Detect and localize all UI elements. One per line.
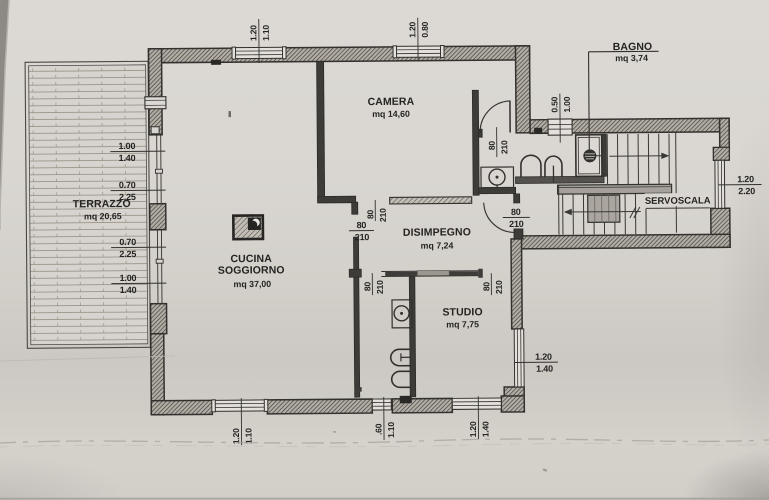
svg-text:2.25: 2.25 xyxy=(119,192,136,202)
svg-text:mq 7,24: mq 7,24 xyxy=(421,240,454,250)
svg-text:1.10: 1.10 xyxy=(261,25,271,41)
svg-text:210: 210 xyxy=(494,280,504,294)
svg-text:210: 210 xyxy=(509,219,524,229)
svg-text:1.40: 1.40 xyxy=(120,285,137,295)
svg-text:1.10: 1.10 xyxy=(243,428,253,444)
svg-text:1.00: 1.00 xyxy=(562,96,572,112)
svg-text:80: 80 xyxy=(357,220,367,230)
svg-text:1.20: 1.20 xyxy=(535,352,552,362)
svg-text:210: 210 xyxy=(375,280,385,294)
svg-text:mq 20,65: mq 20,65 xyxy=(84,211,122,221)
svg-text:80: 80 xyxy=(487,141,497,151)
svg-text:1.20: 1.20 xyxy=(248,25,258,41)
svg-text:1.20: 1.20 xyxy=(737,174,754,184)
svg-text:0.50: 0.50 xyxy=(549,96,559,112)
svg-text:.60: .60 xyxy=(373,423,383,435)
svg-text:1.20: 1.20 xyxy=(407,21,417,37)
svg-text:1.20: 1.20 xyxy=(231,428,241,444)
svg-text:0.70: 0.70 xyxy=(119,237,136,247)
svg-text:1.40: 1.40 xyxy=(536,364,553,374)
svg-text:2.20: 2.20 xyxy=(738,186,755,196)
svg-text:1.40: 1.40 xyxy=(480,421,490,437)
svg-text:1.40: 1.40 xyxy=(119,153,136,163)
svg-text:1.00: 1.00 xyxy=(118,141,135,151)
svg-text:SERVOSCALA: SERVOSCALA xyxy=(645,195,711,207)
svg-text:80: 80 xyxy=(362,282,372,292)
svg-text:1.10: 1.10 xyxy=(386,422,396,438)
svg-text:210: 210 xyxy=(499,140,509,154)
svg-text:1.00: 1.00 xyxy=(120,273,137,283)
svg-text:0.70: 0.70 xyxy=(119,180,136,190)
svg-text:80: 80 xyxy=(365,210,375,220)
svg-text:mq 7,75: mq 7,75 xyxy=(446,319,479,329)
svg-text:CUCINA: CUCINA xyxy=(230,253,272,265)
svg-text:210: 210 xyxy=(355,232,370,242)
svg-text:CAMERA: CAMERA xyxy=(368,96,415,108)
svg-text:mq 3,74: mq 3,74 xyxy=(615,53,648,63)
svg-text:mq 37,00: mq 37,00 xyxy=(233,279,271,289)
svg-text:1.20: 1.20 xyxy=(468,421,478,437)
svg-text:mq 14,60: mq 14,60 xyxy=(372,109,410,119)
svg-text:STUDIO: STUDIO xyxy=(442,306,482,318)
svg-text:210: 210 xyxy=(378,208,388,222)
svg-text:2.25: 2.25 xyxy=(119,249,136,259)
svg-text:80: 80 xyxy=(511,207,521,217)
svg-text:0.80: 0.80 xyxy=(420,21,430,37)
svg-text:DISIMPEGNO: DISIMPEGNO xyxy=(403,226,471,239)
svg-text:SOGGIORNO: SOGGIORNO xyxy=(218,264,285,277)
svg-text:80: 80 xyxy=(481,282,491,292)
